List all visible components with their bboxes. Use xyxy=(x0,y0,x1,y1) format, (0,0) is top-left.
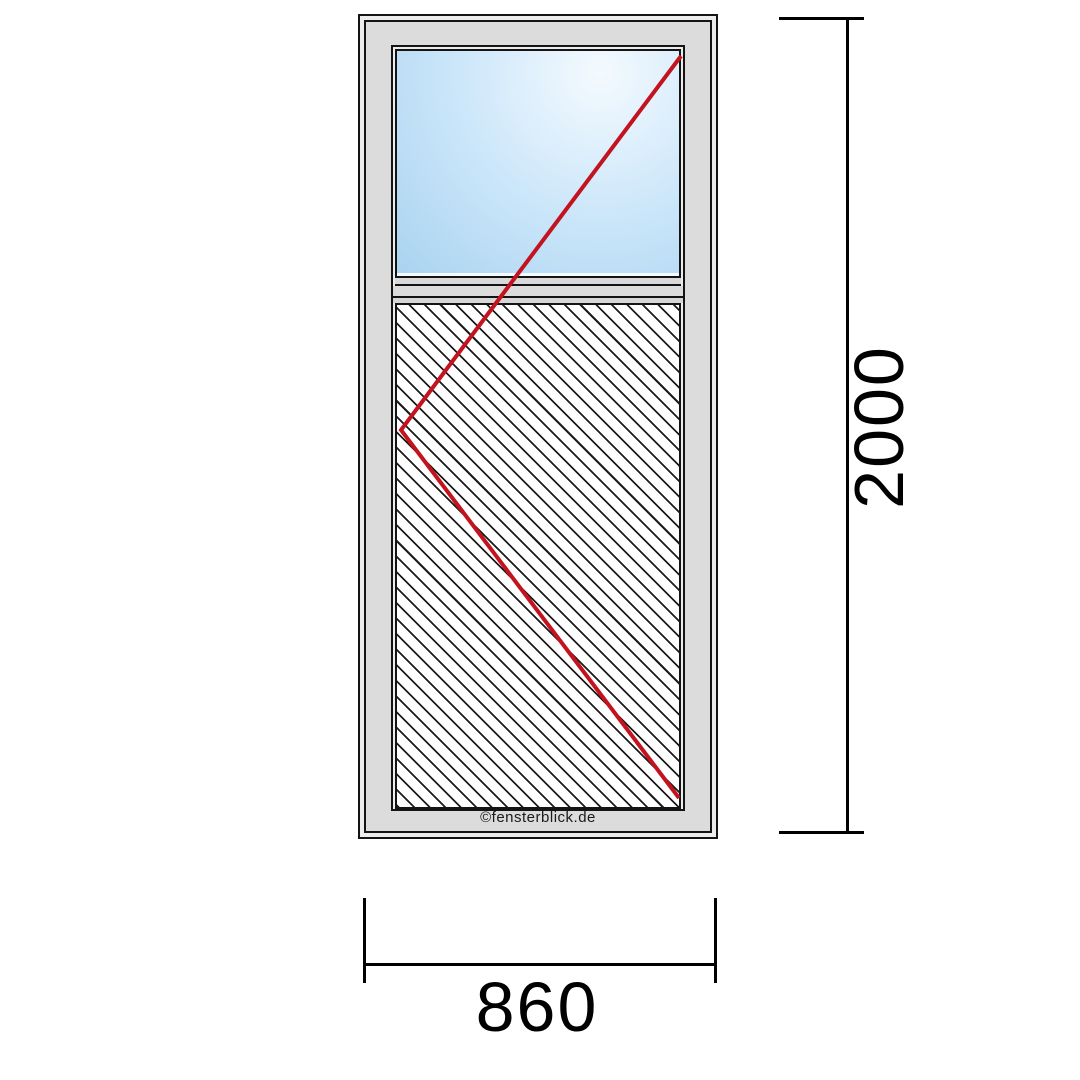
glass-pane xyxy=(395,49,681,278)
drawing-canvas: ©fensterblick.de 2000 860 xyxy=(0,0,1080,1080)
window-opening xyxy=(391,45,685,811)
height-dimension-label: 2000 xyxy=(844,345,914,509)
width-dimension-tick-right xyxy=(714,898,717,983)
height-dimension-tick-bottom xyxy=(779,831,864,834)
watermark-text: ©fensterblick.de xyxy=(358,808,718,828)
width-dimension-label: 860 xyxy=(476,972,599,1042)
width-dimension-line xyxy=(364,963,717,966)
height-dimension-tick-top xyxy=(779,17,864,20)
sash-bottom-rail xyxy=(395,278,681,286)
hatched-infill-panel xyxy=(395,303,681,809)
width-dimension-tick-left xyxy=(363,898,366,983)
window-frame: ©fensterblick.de xyxy=(358,14,718,839)
transom-bar xyxy=(393,286,683,303)
